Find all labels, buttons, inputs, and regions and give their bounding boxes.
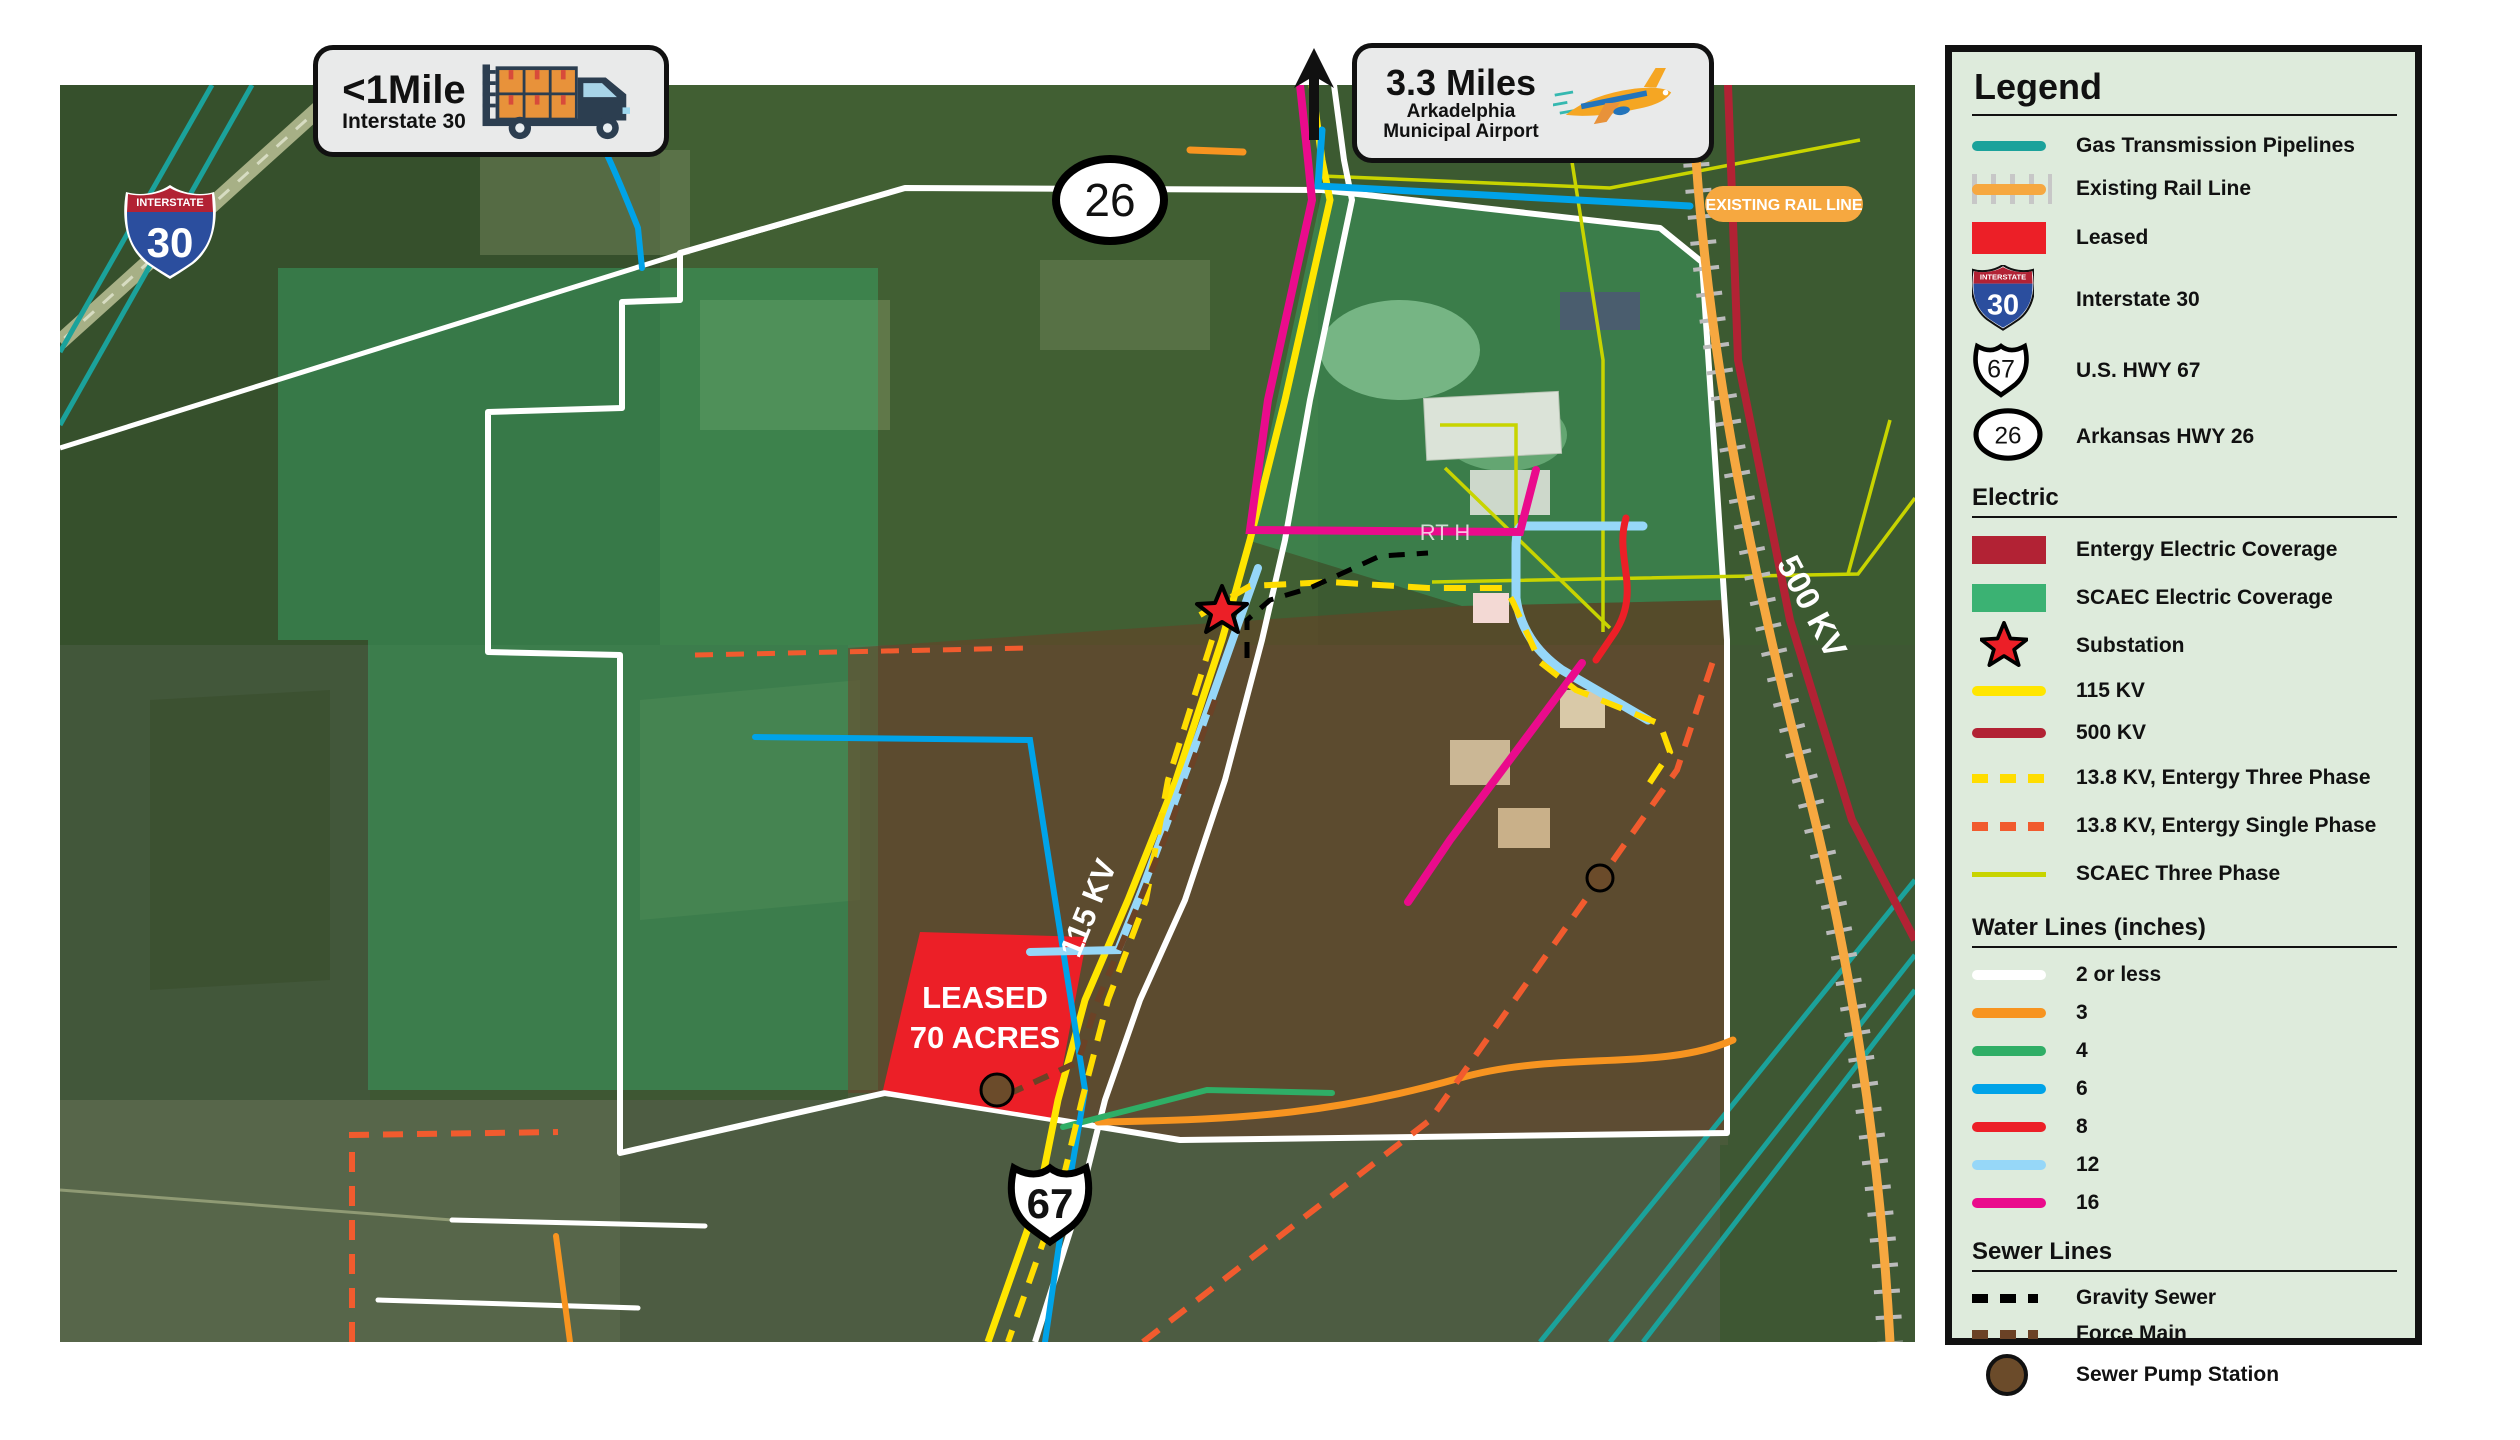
legend-item-gas: Gas Transmission Pipelines <box>1972 126 2397 166</box>
svg-text:26: 26 <box>1994 422 2021 449</box>
map-canvas: EXISTING RAIL LINE LEASED 70 ACRES 115 K… <box>60 85 1915 1342</box>
scaec-three-phase-swatch <box>1972 872 2046 877</box>
legend-item-ar26: 26 Arkansas HWY 26 <box>1972 406 2397 468</box>
gas-line-swatch <box>1972 141 2046 151</box>
legend-item-scaec-coverage: SCAEC Electric Coverage <box>1972 574 2397 622</box>
rail-line-tag: EXISTING RAIL LINE <box>1705 186 1863 222</box>
legend-item-water-8: 8 <box>1972 1108 2397 1146</box>
legend-item-138-three-phase: 13.8 KV, Entergy Three Phase <box>1972 754 2397 802</box>
force-main-swatch <box>1972 1330 2038 1339</box>
distance-destination-line2: Municipal Airport <box>1383 122 1539 142</box>
distance-destination-line1: Arkadelphia <box>1383 102 1539 122</box>
leased-label-line1: LEASED <box>922 980 1048 1015</box>
road-name-label: RT H <box>1420 520 1471 545</box>
north-arrow <box>1288 48 1340 140</box>
distance-callout-interstate: <1Mile Interstate 30 <box>313 45 669 157</box>
legend-item-i30: INTERSTATE 30 Interstate 30 <box>1972 264 2397 336</box>
water-2-swatch <box>1972 970 2046 980</box>
legend-item-water-16: 16 <box>1972 1184 2397 1222</box>
500kv-swatch <box>1972 728 2046 738</box>
115kv-swatch <box>1972 686 2046 696</box>
legend-section-electric: Electric <box>1972 484 2397 518</box>
legend-item-115kv: 115 KV <box>1972 670 2397 712</box>
legend-item-us67: 67 U.S. HWY 67 <box>1972 336 2397 406</box>
legend-item-gravity-sewer: Gravity Sewer <box>1972 1280 2397 1316</box>
water-6-swatch <box>1972 1084 2046 1094</box>
legend-panel: Legend Gas Transmission Pipelines Existi… <box>1945 45 2422 1345</box>
gravity-sewer-swatch <box>1972 1294 2038 1303</box>
water-4-swatch <box>1972 1046 2046 1056</box>
satellite-map: EXISTING RAIL LINE LEASED 70 ACRES 115 K… <box>60 85 1915 1342</box>
water-3-swatch <box>1972 1008 2046 1018</box>
legend-item-force-main: Force Main <box>1972 1316 2397 1352</box>
distance-destination: Interstate 30 <box>342 111 466 133</box>
svg-text:30: 30 <box>1987 289 2019 321</box>
legend-title-rule <box>1972 114 2397 116</box>
138-three-phase-swatch <box>1972 774 2050 783</box>
leased-label-line2: 70 ACRES <box>910 1020 1060 1055</box>
legend-item-water-12: 12 <box>1972 1146 2397 1184</box>
leased-swatch <box>1972 222 2046 254</box>
138-single-phase-swatch <box>1972 822 2050 831</box>
scaec-coverage-swatch <box>1972 584 2046 612</box>
legend-section-water: Water Lines (inches) <box>1972 914 2397 948</box>
legend-item-pump-station: Sewer Pump Station <box>1972 1352 2397 1398</box>
legend-item-entergy-coverage: Entergy Electric Coverage <box>1972 526 2397 574</box>
legend-item-138-single-phase: 13.8 KV, Entergy Single Phase <box>1972 802 2397 850</box>
us-67-shield-icon: 67 <box>1972 338 2030 404</box>
interstate-30-number: 30 <box>147 219 194 266</box>
legend-item-water-4: 4 <box>1972 1032 2397 1070</box>
svg-text:INTERSTATE: INTERSTATE <box>1980 272 2026 281</box>
us-67-number: 67 <box>1027 1180 1074 1227</box>
water-3in-line <box>1190 150 1243 152</box>
substation-star-icon <box>1980 621 2028 672</box>
distance-value: 3.3 Miles <box>1383 64 1539 102</box>
distance-value: <1Mile <box>342 69 466 111</box>
legend-title: Legend <box>1974 66 2397 108</box>
airplane-icon <box>1553 63 1683 144</box>
legend-item-rail: Existing Rail Line <box>1972 166 2397 212</box>
sewer-pump-station <box>981 1074 1013 1106</box>
legend-item-scaec-three-phase: SCAEC Three Phase <box>1972 850 2397 898</box>
legend-item-leased: Leased <box>1972 212 2397 264</box>
distance-callout-airport: 3.3 Miles Arkadelphia Municipal Airport <box>1352 43 1714 163</box>
legend-item-substation: Substation <box>1972 622 2397 670</box>
water-8-swatch <box>1972 1122 2046 1132</box>
rail-line-swatch <box>1972 174 2052 204</box>
interstate-30-shield-icon: INTERSTATE 30 <box>1972 265 2034 336</box>
ar-26-shield-icon: 26 <box>1972 407 2044 467</box>
legend-item-water-3: 3 <box>1972 994 2397 1032</box>
legend-item-water-2: 2 or less <box>1972 956 2397 994</box>
scaec-coverage-area <box>278 268 878 1090</box>
sewer-pump-station <box>1587 865 1613 891</box>
legend-item-water-6: 6 <box>1972 1070 2397 1108</box>
ar-26-number: 26 <box>1084 174 1135 226</box>
entergy-coverage-swatch <box>1972 536 2046 564</box>
water-16-swatch <box>1972 1198 2046 1208</box>
svg-text:67: 67 <box>1987 356 2015 384</box>
rail-tag-label: EXISTING RAIL LINE <box>1705 197 1862 214</box>
water-12-swatch <box>1972 1160 2046 1170</box>
interstate-word: INTERSTATE <box>136 197 203 209</box>
legend-section-sewer: Sewer Lines <box>1972 1238 2397 1272</box>
site-utility-map-page: EXISTING RAIL LINE LEASED 70 ACRES 115 K… <box>0 0 2520 1440</box>
ar-26-shield: 26 <box>1056 159 1164 241</box>
truck-icon <box>480 57 640 146</box>
pump-station-icon <box>1986 1354 2028 1396</box>
legend-item-500kv: 500 KV <box>1972 712 2397 754</box>
